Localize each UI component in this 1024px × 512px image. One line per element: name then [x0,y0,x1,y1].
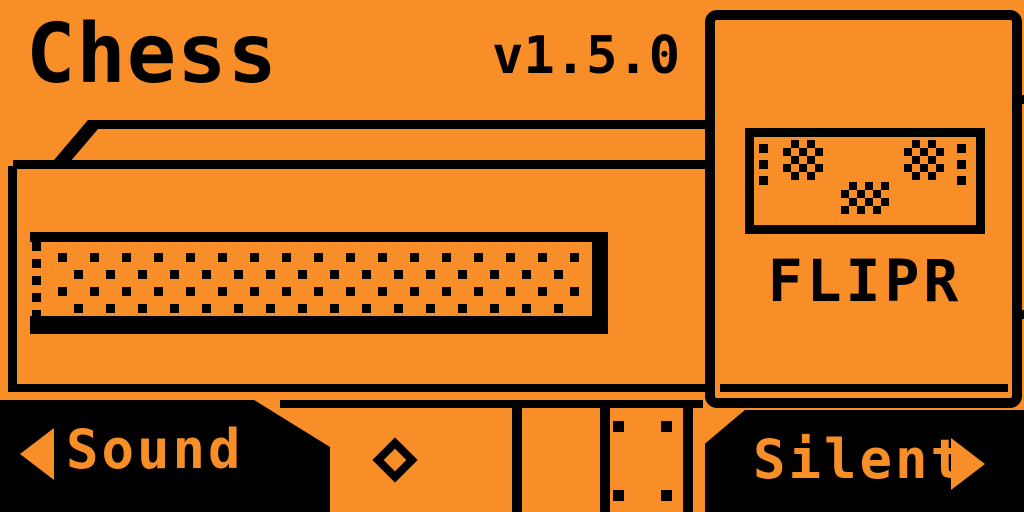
texture-dot [807,156,815,164]
texture-dot [442,253,451,262]
texture-dot [865,182,873,190]
texture-dot [90,287,99,296]
texture-dot [957,144,966,153]
texture-dot [759,144,768,153]
next-card-bottom-tick [1013,310,1024,319]
texture-dot [928,140,936,148]
texture-dot [783,164,791,172]
texture-dot [218,287,227,296]
texture-dot [314,253,323,262]
board-top-line [88,120,705,129]
texture-dot [904,164,912,172]
texture-dot [266,270,275,279]
texture-dot [282,287,291,296]
board-bottom-line [8,384,705,392]
texture-dot [362,304,371,313]
texture-dot [928,172,936,180]
texture-dot [783,148,791,156]
silent-button[interactable]: Silent [705,410,1024,512]
texture-dot [957,176,966,185]
texture-dot [138,304,147,313]
board-second-line [13,160,705,169]
texture-dot [849,182,857,190]
card-footer-divider [720,384,1008,392]
app-version: v1.5.0 [460,30,680,82]
texture-dot [362,270,371,279]
texture-dot [799,164,807,172]
flipper-screen: Chess v1.5.0 FLIPR Sound S [0,0,1024,512]
texture-dot [74,304,83,313]
texture-dot [912,172,920,180]
texture-dot [506,287,515,296]
texture-dot [346,287,355,296]
texture-dot [920,148,928,156]
texture-dot [841,206,849,214]
texture-dot [873,206,881,214]
card-label: FLIPR [745,252,985,310]
texture-dot [282,253,291,262]
texture-dot [759,160,768,169]
texture-dot [138,270,147,279]
mini-card-dot [661,490,672,501]
texture-dot [815,148,823,156]
band-bottom-edge [30,316,608,334]
arrow-left-icon [20,428,54,480]
texture-dot [841,190,849,198]
mini-card-dot [661,421,672,432]
texture-dot [490,270,499,279]
texture-dot [250,253,259,262]
texture-dot [298,270,307,279]
texture-dot [791,172,799,180]
texture-dot [857,190,865,198]
texture-dot [154,253,163,262]
texture-dot [912,140,920,148]
texture-dot [394,270,403,279]
texture-dot [570,253,579,262]
texture-dot [791,156,799,164]
arrow-right-icon [951,438,985,490]
texture-dot [522,304,531,313]
sound-button[interactable]: Sound [0,400,330,512]
mini-card-left-edge [600,408,610,512]
texture-dot [936,148,944,156]
footer-divider-bar [512,408,522,512]
next-card-top-tick [1013,95,1024,104]
band-dot-texture [41,242,590,318]
texture-dot [759,176,768,185]
texture-dot [330,304,339,313]
texture-dot [920,164,928,172]
texture-dot [298,304,307,313]
texture-dot [218,253,227,262]
texture-dot [266,304,275,313]
texture-dot [807,172,815,180]
texture-dot [857,206,865,214]
texture-dot [936,164,944,172]
texture-dot [122,253,131,262]
texture-dot [490,304,499,313]
texture-dot [474,253,483,262]
texture-dot [799,148,807,156]
texture-dot [458,304,467,313]
texture-dot [154,287,163,296]
band-dashed-left-edge [32,242,41,318]
texture-dot [186,287,195,296]
texture-dot [58,287,67,296]
band-top-edge [30,232,608,242]
texture-dot [458,270,467,279]
texture-dot [570,287,579,296]
texture-dot [90,253,99,262]
texture-dot [554,270,563,279]
card-preview-image [745,128,985,234]
texture-dot [474,287,483,296]
texture-dot [410,287,419,296]
texture-dot [912,156,920,164]
texture-dot [202,270,211,279]
texture-dot [202,304,211,313]
ok-diamond-icon[interactable] [372,437,417,482]
texture-dot [346,253,355,262]
texture-dot [873,190,881,198]
texture-dot [330,270,339,279]
texture-dot [442,287,451,296]
board-left-edge [8,166,17,392]
texture-dot [378,287,387,296]
texture-dot [234,304,243,313]
texture-dot [538,253,547,262]
texture-dot [928,156,936,164]
texture-dot [106,304,115,313]
texture-dot [849,198,857,206]
texture-dot [186,253,195,262]
texture-dot [807,140,815,148]
texture-dot [554,304,563,313]
texture-dot [170,304,179,313]
texture-dot [314,287,323,296]
mini-card-dot [613,421,624,432]
texture-dot [122,287,131,296]
texture-dot [522,270,531,279]
texture-dot [957,160,966,169]
texture-dot [234,270,243,279]
texture-dot [538,287,547,296]
mini-card-right-edge [683,408,693,512]
app-title: Chess [26,14,278,96]
footer-top-line [280,400,703,408]
texture-dot [815,164,823,172]
texture-dot [410,253,419,262]
texture-dot [58,253,67,262]
texture-dot [791,140,799,148]
texture-dot [881,198,889,206]
silent-button-label: Silent [753,424,966,496]
texture-dot [106,270,115,279]
texture-dot [394,304,403,313]
texture-dot [881,182,889,190]
texture-dot [378,253,387,262]
texture-dot [506,253,515,262]
texture-dot [74,270,83,279]
texture-dot [904,148,912,156]
texture-dot [426,270,435,279]
texture-dot [865,198,873,206]
sound-button-label: Sound [66,414,244,486]
texture-dot [250,287,259,296]
texture-dot [426,304,435,313]
mini-card-dot [613,490,624,501]
texture-dot [170,270,179,279]
